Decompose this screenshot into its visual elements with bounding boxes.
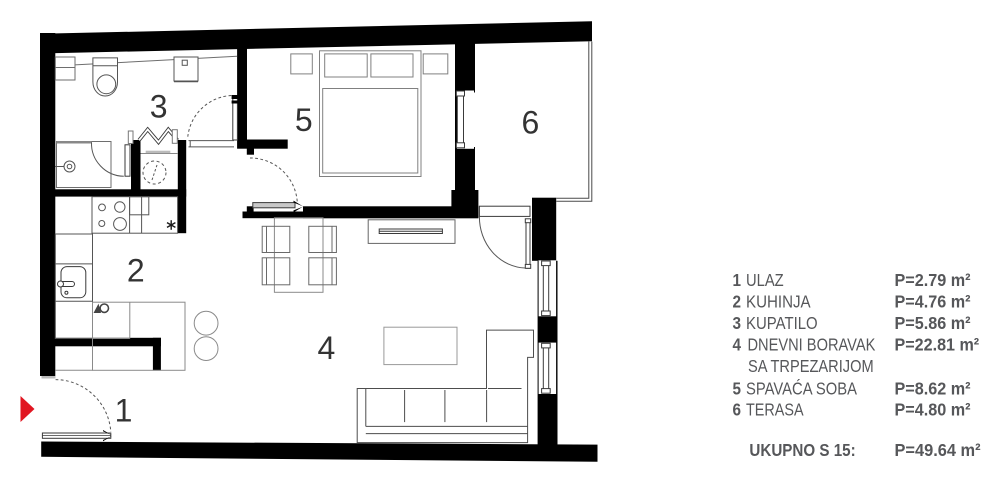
svg-text:5: 5 [733, 378, 742, 398]
svg-text:P=2.79 m²: P=2.79 m² [895, 270, 971, 290]
svg-text:P=8.62 m²: P=8.62 m² [895, 379, 971, 399]
svg-text:KUPATILO: KUPATILO [746, 313, 818, 334]
svg-text:4: 4 [733, 334, 742, 354]
svg-text:P=22.81 m²: P=22.81 m² [895, 335, 980, 355]
svg-text:6: 6 [733, 399, 742, 419]
svg-text:1: 1 [733, 270, 742, 290]
svg-text:KUHINJA: KUHINJA [746, 291, 811, 312]
svg-text:1: 1 [115, 393, 133, 429]
svg-text:P=5.86 m²: P=5.86 m² [895, 313, 971, 333]
svg-text:3: 3 [150, 89, 168, 125]
svg-text:TERASA: TERASA [746, 400, 804, 420]
svg-text:6: 6 [522, 105, 540, 141]
svg-text:2: 2 [733, 291, 742, 311]
svg-text:3: 3 [733, 313, 742, 333]
svg-text:DNEVNI BORAVAK: DNEVNI BORAVAK [748, 335, 876, 355]
svg-text:SA TRPEZARIJOM: SA TRPEZARIJOM [748, 357, 874, 377]
svg-text:ULAZ: ULAZ [746, 271, 784, 291]
svg-text:P=4.80 m²: P=4.80 m² [895, 400, 971, 420]
svg-text:4: 4 [318, 330, 336, 366]
svg-text:P=49.64 m²: P=49.64 m² [895, 439, 981, 460]
svg-text:5: 5 [295, 102, 313, 138]
svg-text:2: 2 [127, 253, 145, 289]
svg-text:UKUPNO S 15:: UKUPNO S 15: [749, 440, 855, 461]
svg-text:P=4.76 m²: P=4.76 m² [895, 292, 971, 312]
svg-text:SPAVAĆA SOBA: SPAVAĆA SOBA [746, 378, 857, 399]
